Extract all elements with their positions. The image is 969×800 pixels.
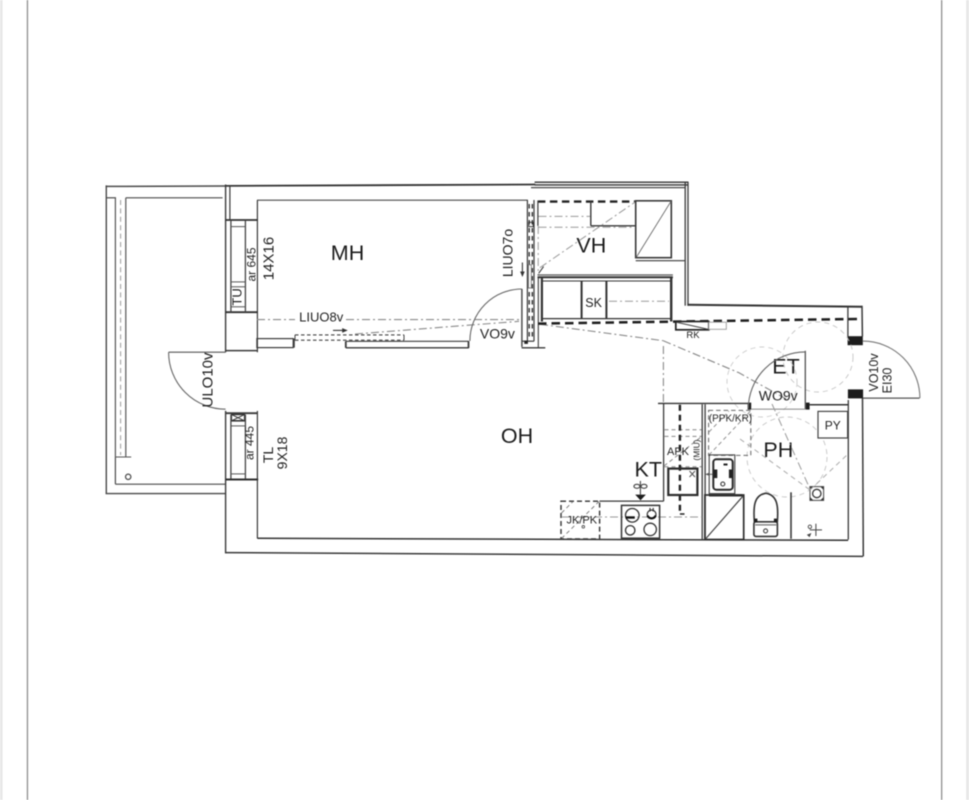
svg-text:TU: TU — [230, 288, 245, 305]
svg-text:PH: PH — [763, 438, 793, 462]
svg-text:MH: MH — [331, 241, 364, 265]
svg-text:WO9v: WO9v — [759, 387, 798, 403]
svg-text:VO10v: VO10v — [867, 353, 881, 392]
svg-text:LIUO8v: LIUO8v — [299, 310, 344, 325]
svg-text:VO9v: VO9v — [480, 325, 515, 341]
svg-text:ar 445: ar 445 — [243, 426, 257, 460]
svg-text:OH: OH — [501, 424, 533, 448]
svg-text:KT: KT — [635, 458, 662, 482]
svg-text:ET: ET — [772, 355, 799, 379]
svg-text:ULO10v: ULO10v — [200, 352, 217, 408]
svg-text:9X18: 9X18 — [274, 436, 290, 469]
svg-text:(MIU): (MIU) — [692, 439, 702, 460]
svg-text:ar 645: ar 645 — [244, 247, 258, 281]
svg-text:JK/PK: JK/PK — [567, 514, 598, 526]
svg-text:PY: PY — [825, 419, 841, 433]
svg-text:VH: VH — [576, 233, 606, 257]
svg-text:EI30: EI30 — [880, 368, 894, 394]
svg-text:14X16: 14X16 — [261, 237, 278, 280]
svg-text:RK: RK — [686, 330, 700, 341]
svg-text:LIUO7o: LIUO7o — [500, 229, 516, 277]
svg-text:APK: APK — [667, 446, 690, 458]
svg-text:SK: SK — [585, 296, 602, 310]
svg-text:(PPK/KR): (PPK/KR) — [709, 414, 752, 425]
